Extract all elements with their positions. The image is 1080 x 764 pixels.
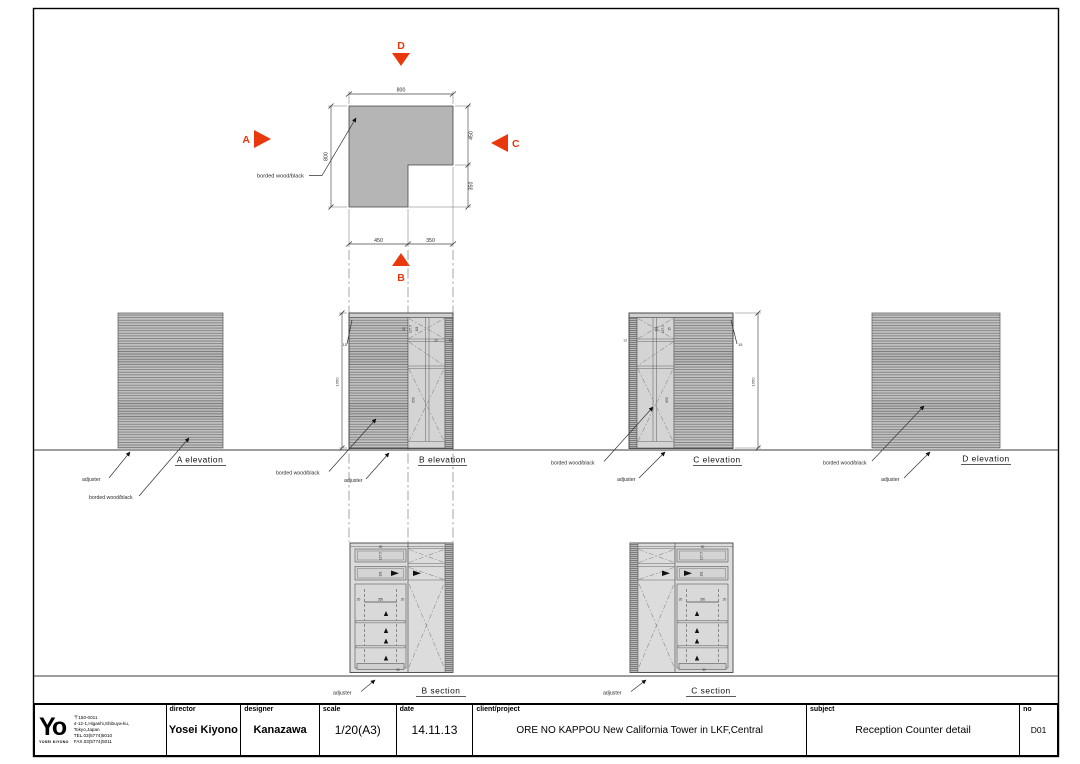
view-label-c: C bbox=[512, 138, 520, 150]
section-b-dim-side-r: 20 bbox=[401, 598, 405, 602]
section-b: 350 20 20 30 127.5 101 30 B section adju… bbox=[333, 543, 466, 697]
plan-dim-right-upper: 450 bbox=[469, 131, 475, 140]
view-label-a: A bbox=[242, 134, 250, 146]
section-b-dim-base: 30 bbox=[396, 668, 400, 672]
section-c-dim-side-r: 20 bbox=[723, 598, 727, 602]
section-c-dim-top: 30 bbox=[701, 545, 705, 549]
elevation-c-dim-e: 13 bbox=[623, 339, 627, 343]
elevation-b: 1050 15 15 127.5 101 20 13 650 B elevati… bbox=[276, 311, 467, 485]
company-address: 〒150-0011 4-12-1,Higashi,Shibuya-ku, Tok… bbox=[74, 715, 129, 745]
director-label: director bbox=[170, 706, 196, 713]
section-c-dim-shelf: 101 bbox=[700, 571, 704, 577]
elevation-a-title: A elevation bbox=[177, 455, 223, 465]
elevation-c-front-panel bbox=[674, 318, 733, 449]
elevation-c-adjuster-label: adjuster bbox=[617, 477, 636, 483]
elevation-d-adjuster-label: adjuster bbox=[881, 477, 900, 483]
plan-dim-bottom-right: 350 bbox=[426, 238, 435, 244]
plan-dim-bottom-left: 450 bbox=[374, 238, 383, 244]
company-logo: Yo bbox=[39, 716, 69, 739]
drawing-sheet: 800 800 450 350 450 350 borded wood/blac… bbox=[0, 0, 1080, 764]
title-block-logo-cell: Yo YOSEI KIYONO 〒150-0011 4-12-1,Higashi… bbox=[35, 705, 166, 755]
plan-dim-left: 800 bbox=[324, 152, 330, 161]
elevation-c: 1050 15 101 127.5 15 13 650 C elevation … bbox=[551, 311, 761, 484]
title-block-subject-cell: subject Reception Counter detail bbox=[806, 705, 1019, 755]
section-b-dim-top: 30 bbox=[379, 545, 383, 549]
section-b-dim-shelf: 101 bbox=[379, 571, 383, 577]
section-b-dim-drawer: 127.5 bbox=[379, 552, 383, 560]
elevation-b-dim-b: 127.5 bbox=[409, 325, 413, 333]
section-c-dim-width: 350 bbox=[700, 598, 706, 602]
elevation-c-dim-b: 127.5 bbox=[661, 325, 665, 333]
no-label: no bbox=[1023, 706, 1032, 713]
elevation-c-dim-c: 101 bbox=[655, 326, 659, 332]
elevation-a-adjuster-label: adjuster bbox=[82, 477, 101, 483]
view-label-d: D bbox=[397, 40, 405, 52]
section-b-adjuster-label: adjuster bbox=[333, 691, 352, 697]
subject-value: Reception Counter detail bbox=[807, 705, 1019, 755]
company-logo-subtext: YOSEI KIYONO bbox=[39, 740, 69, 744]
elevation-c-title: C elevation bbox=[693, 455, 740, 465]
elevation-b-open-bay bbox=[408, 318, 445, 449]
view-arrow-c-icon bbox=[491, 134, 508, 152]
title-block-no-cell: no D01 bbox=[1019, 705, 1057, 755]
section-b-title: B section bbox=[422, 686, 461, 696]
elevation-b-dim-c: 101 bbox=[415, 326, 419, 332]
elevation-d-material-label: borded wood/black bbox=[823, 461, 867, 467]
client-label: client/project bbox=[476, 706, 520, 713]
elevation-d-title: D elevation bbox=[962, 454, 1009, 464]
plan-dim-right-lower: 350 bbox=[469, 182, 475, 191]
date-label: date bbox=[400, 706, 414, 713]
title-block: Yo YOSEI KIYONO 〒150-0011 4-12-1,Higashi… bbox=[33, 703, 1059, 757]
designer-label: designer bbox=[244, 706, 273, 713]
elevation-b-material-label: borded wood/black bbox=[276, 471, 320, 477]
view-label-b: B bbox=[397, 272, 405, 284]
subject-label: subject bbox=[810, 706, 835, 713]
elevation-d-panel bbox=[872, 313, 1000, 448]
title-block-client-cell: client/project ORE NO KAPPOU New Califor… bbox=[472, 705, 806, 755]
section-c-dim-side-l: 20 bbox=[679, 598, 683, 602]
title-block-date-cell: date 14.11.13 bbox=[396, 705, 473, 755]
title-block-scale-cell: scale 1/20(A3) bbox=[319, 705, 396, 755]
elevation-b-dim-height: 1050 bbox=[335, 377, 340, 387]
plan-dim-top: 800 bbox=[397, 88, 406, 94]
address-fax: FAX.03(5774)5011 bbox=[74, 739, 129, 745]
elevation-c-dim-inner: 650 bbox=[665, 397, 669, 403]
elevation-b-title: B elevation bbox=[419, 455, 466, 465]
elevation-c-dim-height: 1050 bbox=[751, 377, 756, 387]
elevation-a: A elevation adjuster borded wood/black bbox=[82, 313, 226, 501]
plan-material-label: borded wood/black bbox=[257, 174, 304, 180]
client-value: ORE NO KAPPOU New California Tower in LK… bbox=[473, 705, 806, 755]
elevation-a-panel bbox=[118, 313, 223, 448]
elevation-b-front-panel bbox=[349, 318, 408, 449]
view-arrow-d-icon bbox=[392, 53, 410, 66]
view-arrow-b-icon bbox=[392, 253, 410, 266]
section-b-dim-side-l: 20 bbox=[357, 598, 361, 602]
elevation-b-dim-e: 13 bbox=[449, 339, 453, 343]
drawing-canvas: 800 800 450 350 450 350 borded wood/blac… bbox=[0, 0, 1080, 764]
scale-label: scale bbox=[323, 706, 341, 713]
elevation-a-material-label: borded wood/black bbox=[89, 495, 133, 501]
section-c-dim-base: 30 bbox=[702, 668, 706, 672]
section-c-title: C section bbox=[691, 686, 730, 696]
title-block-director-cell: director Yosei Kiyono bbox=[166, 705, 241, 755]
elevation-c-material-label: borded wood/black bbox=[551, 461, 595, 467]
title-block-designer-cell: designer Kanazawa bbox=[240, 705, 319, 755]
elevation-c-open-bay bbox=[637, 318, 674, 449]
elevation-b-dim-d: 20 bbox=[434, 339, 438, 343]
view-arrow-a-icon bbox=[254, 130, 271, 148]
elevation-b-dim-a: 15 bbox=[402, 327, 406, 331]
elevation-b-dim-inner: 650 bbox=[412, 397, 416, 403]
plan-counter-shape bbox=[349, 106, 453, 207]
section-c-adjuster-label: adjuster bbox=[603, 691, 622, 697]
elevation-c-dim-a: 15 bbox=[668, 327, 672, 331]
elevation-c-dim-top: 15 bbox=[738, 342, 743, 347]
elevation-b-adjuster-label: adjuster bbox=[344, 478, 363, 484]
section-c: 350 20 20 30 127.5 101 30 C section adju… bbox=[603, 543, 736, 697]
elevation-d: D elevation borded wood/black adjuster bbox=[823, 313, 1011, 483]
section-b-dim-width: 350 bbox=[378, 598, 384, 602]
plan-view: 800 800 450 350 450 350 borded wood/blac… bbox=[242, 40, 520, 284]
section-c-dim-drawer: 127.5 bbox=[700, 552, 704, 560]
